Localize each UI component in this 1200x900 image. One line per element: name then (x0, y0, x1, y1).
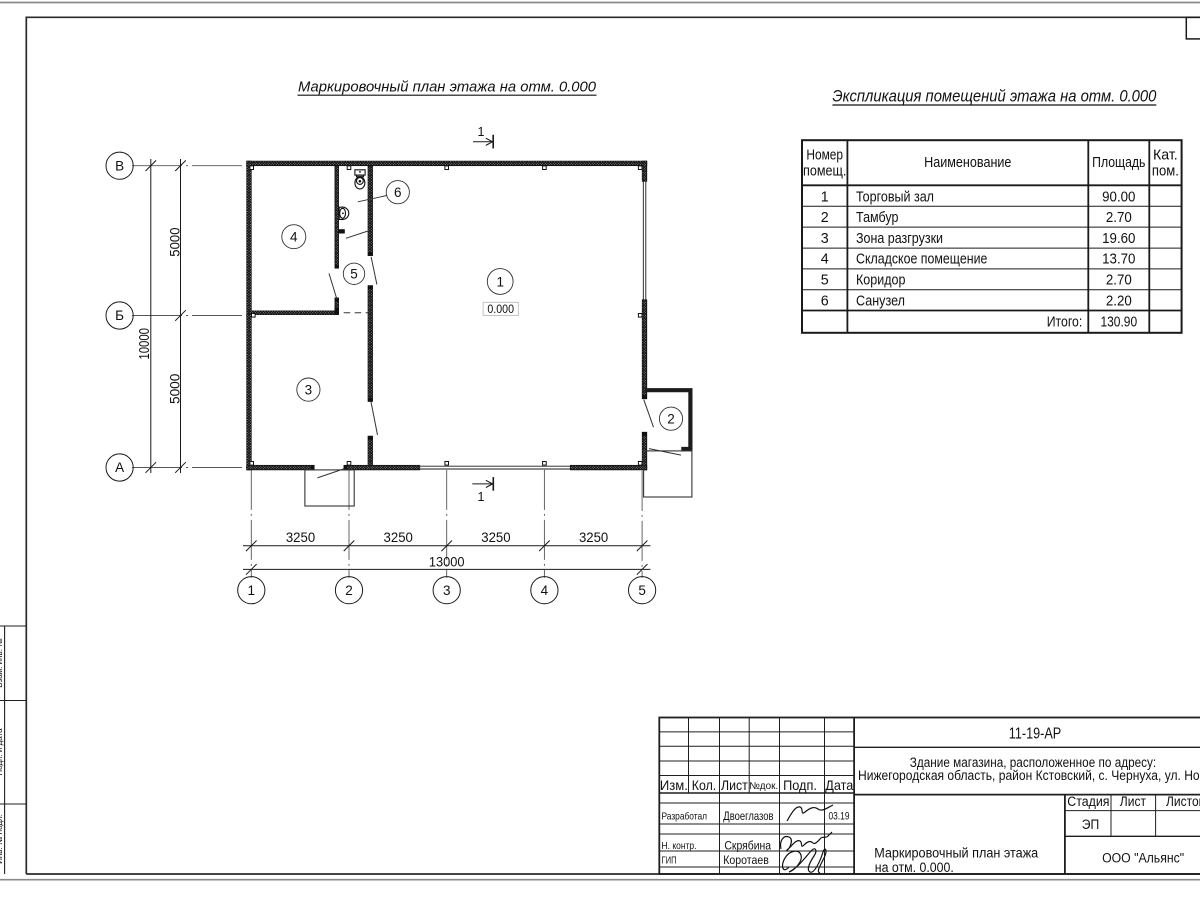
svg-text:Разработал: Разработал (662, 811, 708, 823)
svg-text:1: 1 (478, 125, 485, 139)
svg-text:10000: 10000 (137, 328, 153, 360)
svg-text:2.70: 2.70 (1106, 273, 1132, 289)
svg-text:ООО "Альянс": ООО "Альянс" (1102, 850, 1184, 866)
svg-text:1: 1 (496, 274, 504, 289)
svg-text:Торговый зал: Торговый зал (856, 189, 934, 205)
svg-text:Номер: Номер (806, 147, 843, 163)
svg-text:5: 5 (638, 583, 646, 598)
svg-text:13.70: 13.70 (1102, 252, 1135, 268)
svg-text:Инв. № подл.: Инв. № подл. (0, 814, 4, 864)
svg-text:2.70: 2.70 (1106, 210, 1132, 226)
svg-text:4: 4 (821, 252, 829, 268)
svg-text:Подп. и дата: Подп. и дата (0, 728, 4, 776)
svg-text:13000: 13000 (429, 554, 465, 569)
svg-text:3: 3 (821, 231, 829, 247)
svg-text:19.60: 19.60 (1102, 231, 1135, 247)
svg-text:2.20: 2.20 (1106, 293, 1132, 309)
svg-text:А: А (115, 460, 124, 475)
svg-text:Лист: Лист (1120, 794, 1146, 809)
svg-text:6: 6 (394, 185, 402, 200)
svg-text:Взам. инв. №: Взам. инв. № (0, 638, 4, 688)
svg-text:90.00: 90.00 (1102, 189, 1135, 205)
svg-text:Нижегородская область, район К: Нижегородская область, район Кстовский, … (858, 768, 1200, 784)
svg-text:11-19-АР: 11-19-АР (1009, 725, 1062, 742)
svg-text:Санузел: Санузел (856, 293, 905, 309)
svg-text:1: 1 (821, 189, 829, 205)
svg-text:Коридор: Коридор (856, 273, 906, 289)
svg-text:1: 1 (248, 583, 256, 598)
svg-text:Стадия: Стадия (1067, 794, 1109, 809)
svg-text:2: 2 (821, 210, 829, 226)
svg-text:Б: Б (115, 308, 124, 323)
svg-text:03.19: 03.19 (829, 810, 850, 822)
svg-text:на отм. 0.000.: на отм. 0.000. (875, 860, 954, 876)
svg-text:В: В (115, 158, 124, 173)
svg-text:ЭП: ЭП (1082, 817, 1100, 833)
svg-text:Зона разгрузки: Зона разгрузки (856, 231, 943, 247)
svg-text:Дата: Дата (825, 778, 853, 793)
svg-text:3: 3 (443, 583, 451, 598)
svg-text:5: 5 (350, 267, 358, 282)
svg-text:Итого:: Итого: (1047, 315, 1083, 331)
svg-text:Маркировочный план этажа на от: Маркировочный план этажа на отм. 0.000 (298, 79, 597, 96)
svg-text:Лист: Лист (721, 778, 748, 793)
svg-text:4: 4 (290, 230, 298, 245)
svg-text:Кол.: Кол. (692, 778, 717, 793)
svg-text:1: 1 (478, 490, 485, 504)
svg-text:Н. контр.: Н. контр. (662, 841, 697, 852)
svg-text:Тамбур: Тамбур (856, 210, 899, 226)
svg-text:3250: 3250 (481, 530, 510, 545)
svg-text:Площадь: Площадь (1092, 155, 1145, 171)
svg-text:5000: 5000 (166, 373, 182, 404)
svg-text:3250: 3250 (384, 530, 413, 545)
svg-text:2: 2 (667, 412, 675, 427)
svg-text:пом.: пом. (1152, 164, 1179, 180)
svg-text:5000: 5000 (166, 227, 182, 256)
svg-text:Маркировочный план этажа: Маркировочный план этажа (874, 845, 1038, 861)
svg-text:Экспликация помещений этажа на: Экспликация помещений этажа на отм. 0.00… (832, 88, 1156, 106)
svg-text:3250: 3250 (286, 530, 315, 545)
svg-text:Складское помещение: Складское помещение (856, 252, 987, 268)
svg-text:4: 4 (541, 583, 549, 598)
svg-text:130.90: 130.90 (1100, 315, 1137, 331)
svg-text:2: 2 (345, 583, 353, 598)
svg-text:Двоеглазов: Двоеглазов (723, 809, 773, 823)
svg-text:3: 3 (305, 382, 313, 397)
svg-text:Кат.: Кат. (1153, 147, 1178, 163)
svg-text:3250: 3250 (579, 530, 608, 545)
svg-text:5: 5 (821, 273, 829, 289)
svg-text:Листов: Листов (1166, 794, 1200, 809)
svg-text:Изм.: Изм. (660, 778, 688, 793)
svg-text:помещ.: помещ. (803, 164, 846, 180)
svg-text:Скрябина: Скрябина (724, 839, 771, 853)
svg-text:Подп.: Подп. (783, 778, 817, 793)
svg-text:0.000: 0.000 (487, 303, 514, 316)
svg-text:Наименование: Наименование (924, 155, 1011, 171)
svg-text:ГИП: ГИП (662, 855, 677, 866)
svg-text:6: 6 (821, 293, 829, 309)
svg-text:Коротаев: Коротаев (723, 853, 769, 867)
svg-text:№док.: №док. (749, 781, 778, 792)
